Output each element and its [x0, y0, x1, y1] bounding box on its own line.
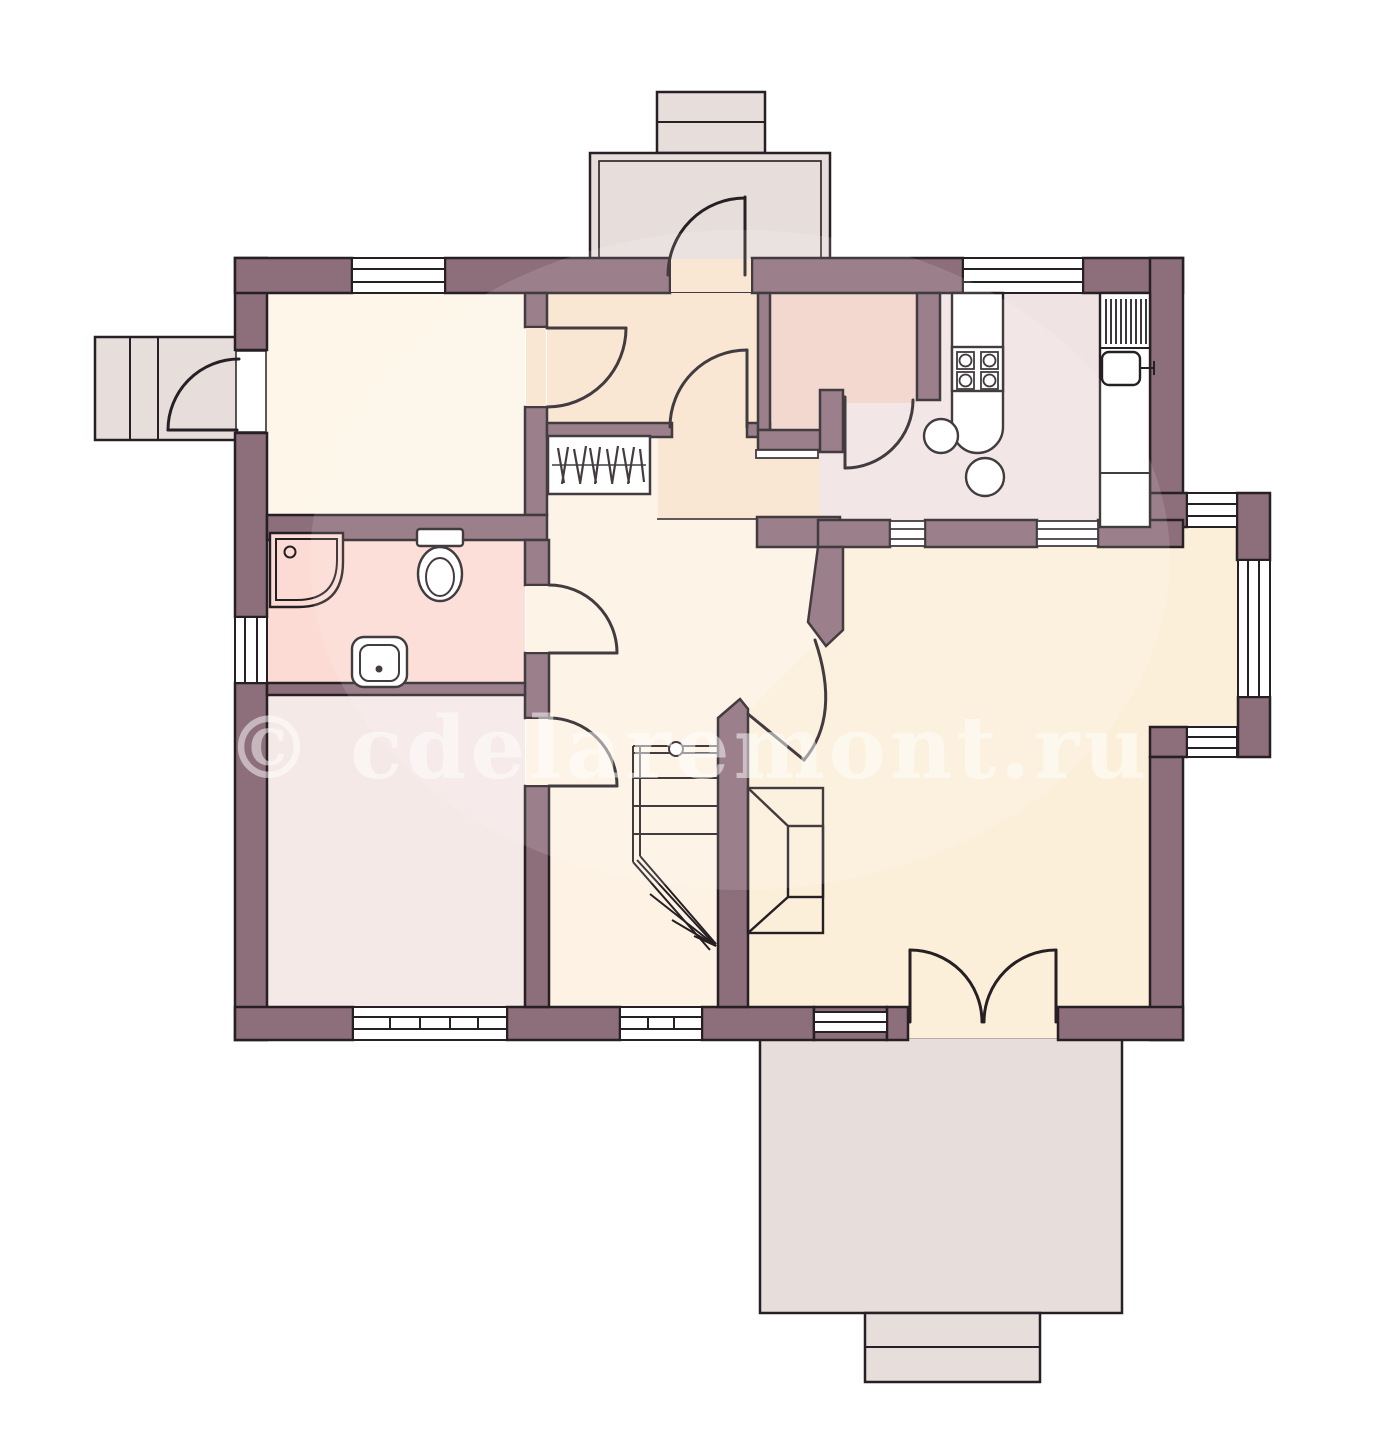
wall: [1058, 1007, 1183, 1040]
window-bottom-left: [353, 1007, 507, 1040]
wall: [235, 258, 352, 293]
side-porch: [95, 337, 237, 440]
porch-door-opening: [236, 351, 266, 432]
terrace-outline: [760, 1037, 1122, 1313]
window-bottom-living: [814, 1012, 887, 1032]
bay-window-right: [1238, 560, 1270, 697]
wall: [1238, 697, 1270, 757]
wall: [702, 1007, 814, 1040]
floor-plan: © cdelaremont.ru: [0, 0, 1374, 1456]
bay-window-bottom: [1187, 727, 1237, 757]
window-bottom-hall: [620, 1007, 702, 1040]
wall: [507, 1007, 620, 1040]
window-top-left: [352, 258, 445, 293]
wall: [235, 433, 267, 617]
wall: [887, 1007, 908, 1040]
wall: [1150, 757, 1183, 1040]
wall: [1150, 258, 1183, 505]
watermark: © cdelaremont.ru: [226, 698, 1150, 799]
wall: [235, 1007, 353, 1040]
window-bathroom-left: [235, 617, 267, 683]
porch-outline: [95, 337, 237, 440]
wall: [1150, 727, 1187, 757]
bay-window-top: [1187, 493, 1237, 527]
wall: [1237, 493, 1270, 560]
